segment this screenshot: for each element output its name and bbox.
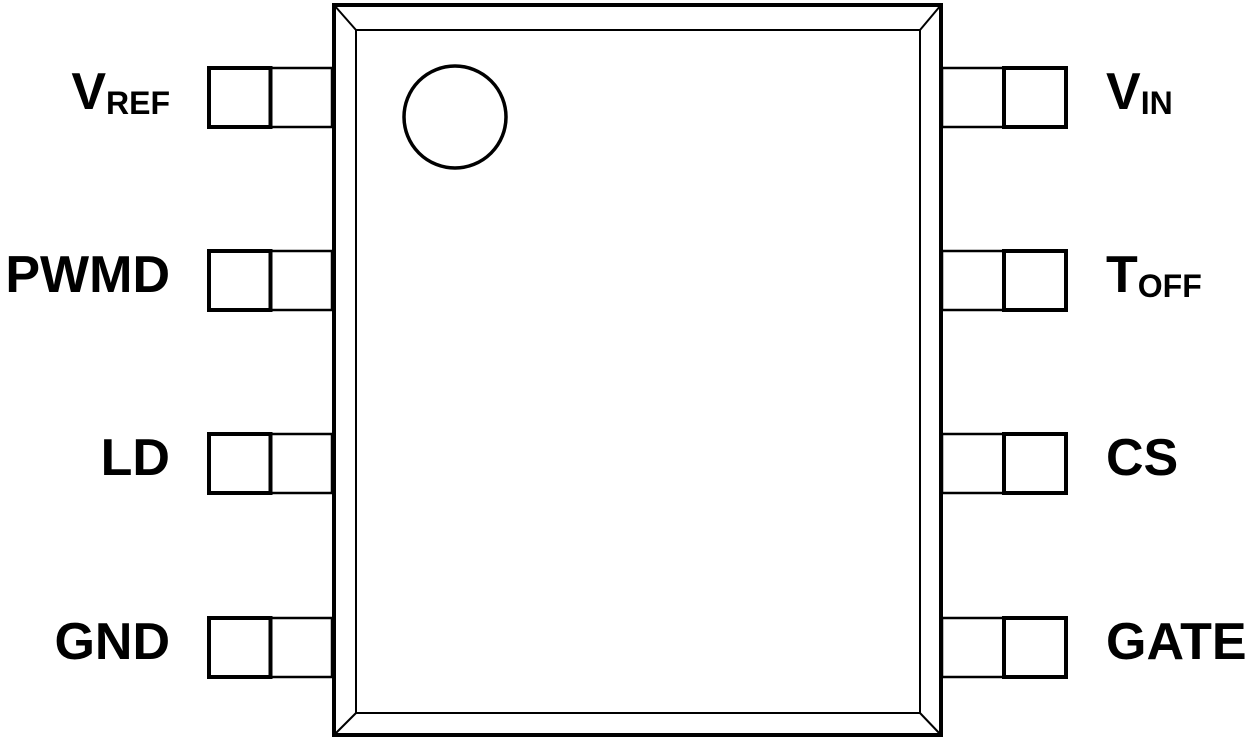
- chip-body-outer: [334, 5, 941, 735]
- chip-bevel-line-top-right: [920, 5, 941, 30]
- pin-left-3-outer-segment: [209, 434, 271, 493]
- pin-right-2-inner-segment: [942, 251, 1004, 310]
- pin-label-gate: GATE: [1106, 616, 1247, 679]
- pin-label-vref: VREF: [71, 66, 170, 129]
- pin-label-main: GND: [54, 613, 170, 671]
- pin-label-gnd: GND: [54, 616, 170, 679]
- pin-label-main: V: [71, 63, 106, 121]
- pin-label-subscript: IN: [1141, 85, 1173, 121]
- pin-left-2-outer-segment: [209, 251, 271, 310]
- pin-label-main: CS: [1106, 429, 1178, 487]
- chip-package-drawing: [0, 0, 1256, 747]
- pin-right-4-outer-segment: [1004, 618, 1066, 677]
- pin-right-3-inner-segment: [942, 434, 1004, 493]
- pin-label-vin: VIN: [1106, 66, 1173, 129]
- pin-label-main: T: [1106, 246, 1138, 304]
- pin-label-main: PWMD: [5, 246, 170, 304]
- pin-right-1-inner-segment: [942, 68, 1004, 127]
- pin1-indicator-dot: [404, 66, 506, 168]
- pin-left-1-inner-segment: [271, 68, 333, 127]
- chip-bevel-line-top-left: [334, 5, 356, 30]
- pin-label-toff: TOFF: [1106, 249, 1202, 312]
- chip-bevel-line-bottom-right: [920, 713, 941, 735]
- pin-right-4-inner-segment: [942, 618, 1004, 677]
- pinout-diagram: VREF PWMD LD GND VIN TOFF CS GATE: [0, 0, 1256, 747]
- pin-right-3-outer-segment: [1004, 434, 1066, 493]
- pin-label-subscript: OFF: [1138, 268, 1202, 304]
- chip-bevel-line-bottom-left: [334, 713, 356, 735]
- pin-right-1-outer-segment: [1004, 68, 1066, 127]
- pin-label-ld: LD: [101, 432, 170, 495]
- pin-left-4-outer-segment: [209, 618, 271, 677]
- pin-label-main: LD: [101, 429, 170, 487]
- chip-body-inner: [356, 30, 920, 713]
- pin-label-subscript: REF: [106, 85, 170, 121]
- pin-label-cs: CS: [1106, 432, 1178, 495]
- pin-label-pwmd: PWMD: [5, 249, 170, 312]
- pin-right-2-outer-segment: [1004, 251, 1066, 310]
- pin-label-main: GATE: [1106, 613, 1247, 671]
- pin-left-1-outer-segment: [209, 68, 271, 127]
- pin-left-2-inner-segment: [271, 251, 333, 310]
- pin-left-4-inner-segment: [271, 618, 333, 677]
- pin-left-3-inner-segment: [271, 434, 333, 493]
- pin-label-main: V: [1106, 63, 1141, 121]
